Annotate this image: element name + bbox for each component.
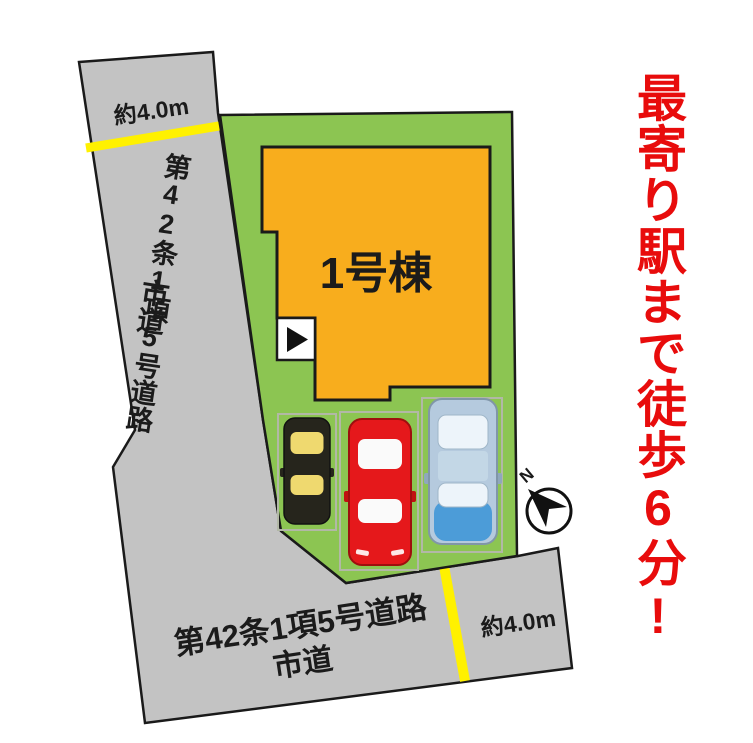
compass-icon	[527, 489, 571, 533]
car-blue	[424, 399, 502, 544]
building-label: 1号棟	[278, 237, 474, 301]
car-red	[344, 419, 416, 565]
station-tagline: 最寄り駅まで徒歩6分!	[632, 72, 684, 645]
entrance-arrow-icon	[277, 318, 315, 360]
site-plan: 約4.0m 第42条1項5号道路 市道 1号棟 第42条1項5号道路 市道 約4…	[0, 0, 753, 743]
car-black	[280, 418, 334, 524]
